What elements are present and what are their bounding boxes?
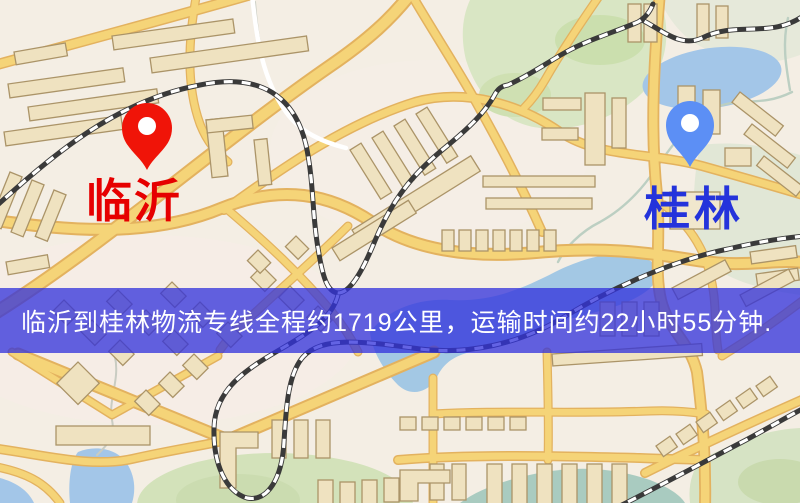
- pin-hole: [681, 114, 699, 132]
- route-info-banner: 临沂到桂林物流专线全程约1719公里，运输时间约22小时55分钟.: [0, 288, 800, 353]
- map-canvas[interactable]: 临沂到桂林物流专线全程约1719公里，运输时间约22小时55分钟. 临沂 桂林: [0, 0, 800, 503]
- route-info-text: 临沂到桂林物流专线全程约1719公里，运输时间约22小时55分钟.: [21, 303, 772, 339]
- destination-city-label: 桂林: [644, 186, 744, 232]
- map-artwork: [0, 0, 800, 503]
- origin-city-label: 临沂: [86, 178, 182, 224]
- pin-hole: [138, 117, 156, 135]
